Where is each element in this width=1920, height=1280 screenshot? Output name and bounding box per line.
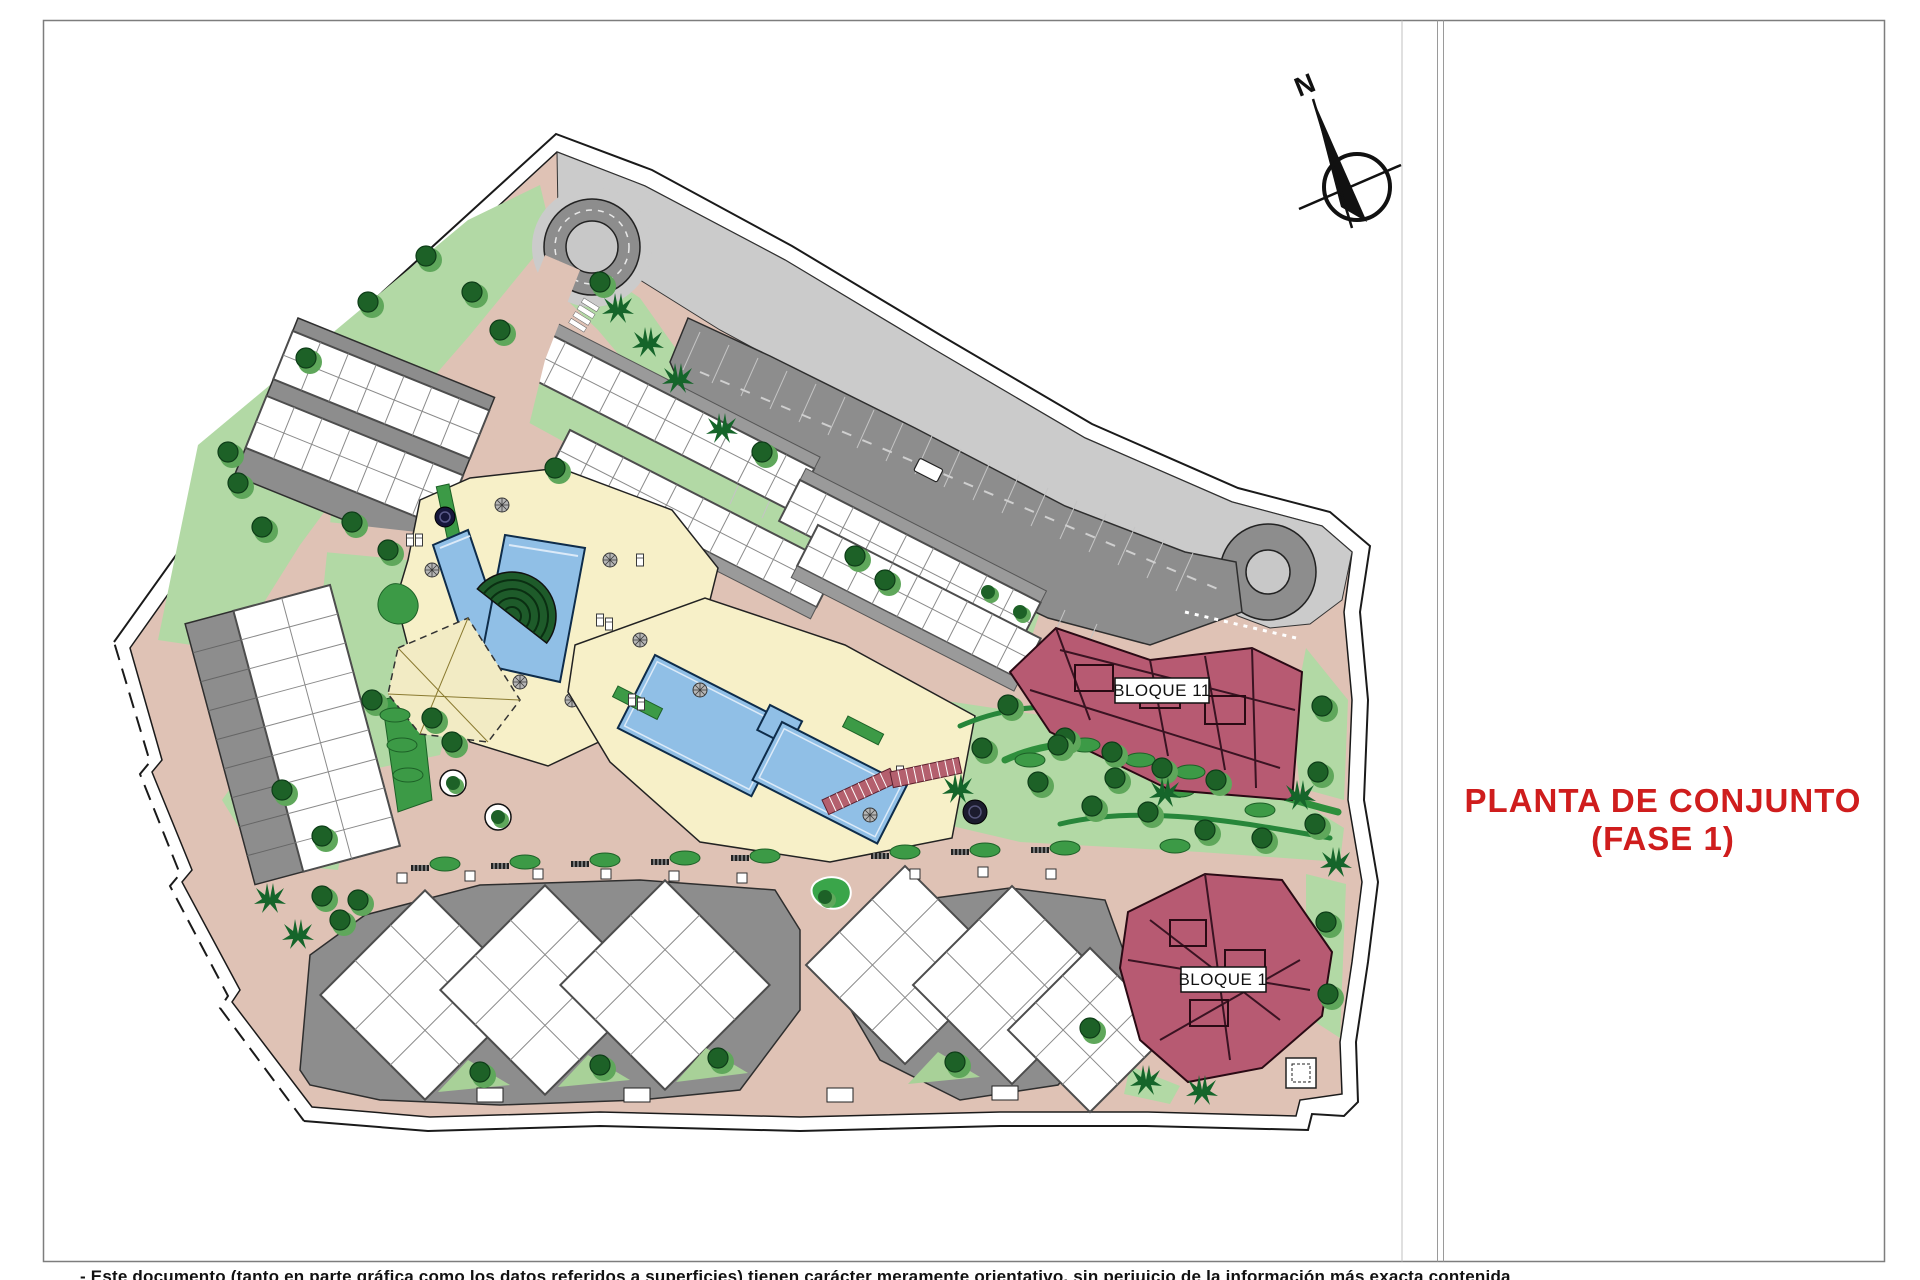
site-plan-drawing: BLOQUE 11 BLOQUE 1 N PLANTA DE CONJUNTO … bbox=[0, 0, 1920, 1280]
title-line-1: PLANTA DE CONJUNTO bbox=[1465, 782, 1862, 819]
footer-disclaimer: - Este documento (tanto en parte gráfica… bbox=[80, 1267, 1580, 1280]
title-line-2: (FASE 1) bbox=[1591, 820, 1735, 857]
utility-box bbox=[1286, 1058, 1316, 1088]
sheet-title: PLANTA DE CONJUNTO (FASE 1) bbox=[1465, 782, 1862, 857]
north-compass-icon: N bbox=[1290, 68, 1401, 228]
plan-sheet: BLOQUE 11 BLOQUE 1 N PLANTA DE CONJUNTO … bbox=[0, 0, 1920, 1280]
bloque-11-label-text: BLOQUE 11 bbox=[1113, 681, 1211, 700]
bloque-1-label-text: BLOQUE 1 bbox=[1178, 970, 1267, 989]
north-label: N bbox=[1290, 68, 1319, 103]
bloque-1-label: BLOQUE 1 bbox=[1178, 967, 1267, 992]
bloque-11-label: BLOQUE 11 bbox=[1113, 678, 1211, 703]
